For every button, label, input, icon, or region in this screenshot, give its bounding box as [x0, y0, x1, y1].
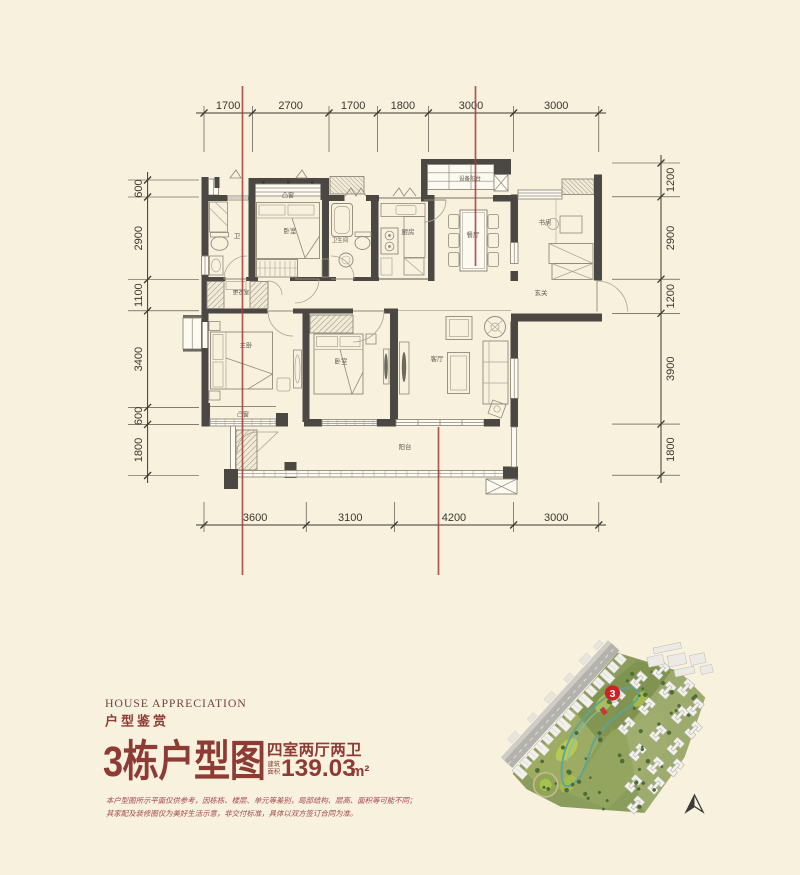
svg-text:1800: 1800: [665, 437, 677, 461]
svg-text:2700: 2700: [278, 100, 302, 112]
svg-text:139.03: 139.03: [281, 755, 356, 782]
svg-text:3000: 3000: [459, 100, 483, 112]
svg-text:凸窗: 凸窗: [282, 192, 294, 200]
svg-text:餐厅: 餐厅: [467, 230, 481, 239]
svg-text:书房: 书房: [539, 218, 552, 227]
svg-text:3600: 3600: [243, 512, 267, 524]
svg-text:600: 600: [133, 179, 145, 197]
svg-text:m²: m²: [351, 763, 369, 780]
svg-text:卫生间: 卫生间: [332, 236, 349, 244]
svg-text:4200: 4200: [442, 512, 466, 524]
svg-text:更衣室: 更衣室: [233, 289, 250, 297]
svg-text:设备阳台: 设备阳台: [459, 175, 482, 183]
svg-text:1200: 1200: [665, 168, 677, 192]
svg-text:卧室: 卧室: [335, 357, 349, 366]
svg-text:3: 3: [610, 688, 616, 700]
svg-text:客厅: 客厅: [431, 354, 445, 363]
svg-text:3000: 3000: [544, 512, 568, 524]
svg-text:主卧: 主卧: [240, 341, 254, 350]
svg-text:3900: 3900: [665, 356, 677, 380]
svg-text:卧室: 卧室: [284, 226, 298, 235]
svg-text:1800: 1800: [391, 100, 415, 112]
svg-text:建筑: 建筑: [268, 759, 281, 768]
svg-text:2900: 2900: [133, 226, 145, 250]
svg-text:1700: 1700: [216, 100, 240, 112]
svg-text:2900: 2900: [665, 226, 677, 250]
svg-text:面积: 面积: [268, 767, 281, 776]
svg-text:1700: 1700: [341, 100, 365, 112]
svg-text:本户型图所示平面仅供参考，因栋栋、楼层、单元等差别，局部结构: 本户型图所示平面仅供参考，因栋栋、楼层、单元等差别，局部结构、层高、面积等可能不…: [106, 796, 416, 805]
svg-text:玄关: 玄关: [535, 288, 549, 297]
svg-text:卫: 卫: [234, 232, 241, 240]
svg-text:1800: 1800: [133, 438, 145, 462]
svg-text:1200: 1200: [665, 284, 677, 308]
svg-text:其家配及装修图仅为美好生活示意，非交付标准，具体以双方签订合: 其家配及装修图仅为美好生活示意，非交付标准，具体以双方签订合同为准。: [106, 809, 357, 818]
svg-text:3000: 3000: [544, 100, 568, 112]
svg-text:3栋户型图: 3栋户型图: [103, 738, 265, 786]
svg-text:HOUSE APPRECIATION: HOUSE APPRECIATION: [105, 696, 247, 710]
svg-text:户型鉴赏: 户型鉴赏: [105, 714, 169, 729]
svg-text:600: 600: [133, 407, 145, 425]
svg-text:1100: 1100: [133, 283, 145, 307]
svg-text:3400: 3400: [133, 347, 145, 371]
svg-text:3100: 3100: [338, 512, 362, 524]
svg-text:阳台: 阳台: [399, 442, 412, 451]
svg-text:厨房: 厨房: [402, 227, 415, 236]
